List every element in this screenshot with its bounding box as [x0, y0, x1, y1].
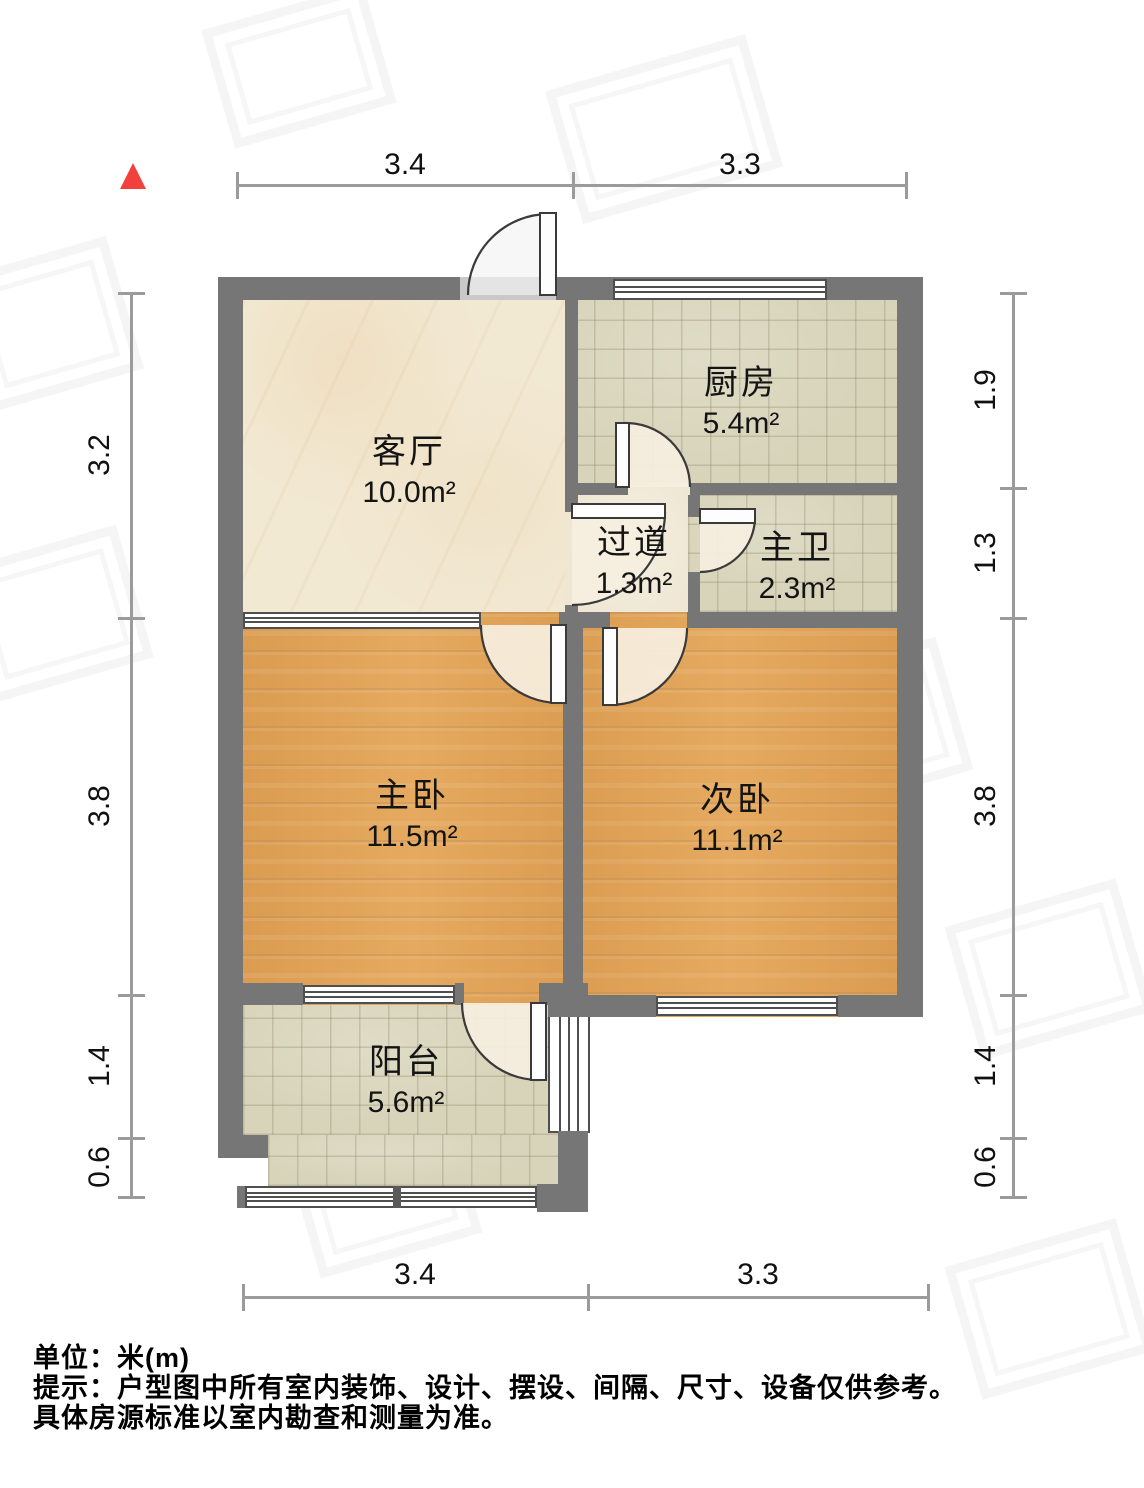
- master-balcony-window: [303, 985, 455, 1004]
- wall-master-bottom-left: [218, 983, 303, 1005]
- dim-tick: [118, 617, 145, 620]
- balcony-side-window: [548, 1005, 590, 1133]
- watermark: [0, 236, 144, 412]
- wall-kitchen-bottom-right: [690, 483, 923, 495]
- wall-left: [218, 277, 243, 1158]
- wall-right: [897, 277, 923, 1017]
- wall-bath-bottom: [687, 612, 923, 628]
- dim-tick: [236, 172, 239, 199]
- balcony-window-mullion: [393, 1186, 401, 1208]
- dim-tick: [1000, 994, 1027, 997]
- dim-label-left-3: 1.4: [83, 1045, 117, 1087]
- wall-mid-between-doors: [559, 612, 610, 628]
- dim-label-bottom-2: 3.3: [737, 1258, 779, 1292]
- dim-line-bottom: [243, 1296, 929, 1299]
- room-label-kitchen: 厨房 5.4m²: [703, 355, 780, 441]
- dim-tick: [927, 1284, 930, 1311]
- room-label-bathroom: 主卫 2.3m²: [759, 520, 836, 606]
- watermark: [201, 0, 396, 149]
- room-label-living: 客厅 10.0m²: [362, 424, 455, 510]
- room-area: 5.4m²: [703, 407, 780, 441]
- room-area: 10.0m²: [362, 476, 455, 510]
- dim-tick: [1000, 487, 1027, 490]
- dim-line-left: [130, 293, 133, 1198]
- wall-hallway-bath-upper: [688, 495, 700, 517]
- living-master-partition-window: [243, 612, 481, 629]
- dim-label-top-1: 3.4: [384, 148, 426, 182]
- room-label-balcony: 阳台 5.6m²: [368, 1034, 445, 1120]
- dim-tick: [572, 172, 575, 199]
- dim-label-right-1: 1.9: [969, 369, 1003, 411]
- dim-label-left-4: 0.6: [83, 1146, 117, 1188]
- dim-label-top-2: 3.3: [719, 148, 761, 182]
- watermark: [944, 1218, 1144, 1400]
- wall-living-kitchen: [565, 300, 578, 512]
- dim-tick: [118, 994, 145, 997]
- dim-tick: [1000, 292, 1027, 295]
- room-label-second-bedroom: 次卧 11.1m²: [691, 772, 782, 858]
- room-area: 1.3m²: [596, 567, 673, 601]
- wall-hallway-bath-lower: [688, 572, 700, 612]
- dim-tick: [118, 1137, 145, 1140]
- wall-balcony-bottom-right-cap: [537, 1184, 584, 1212]
- watermark: [944, 878, 1144, 1060]
- dim-label-right-3: 3.8: [969, 785, 1003, 827]
- dim-label-bottom-1: 3.4: [394, 1258, 436, 1292]
- room-area: 11.5m²: [366, 820, 457, 854]
- floor-plan-canvas: 客厅 10.0m² 厨房 5.4m² 过道 1.3m² 主卫 2.3m² 主卧 …: [0, 0, 1144, 1488]
- dim-label-right-2: 1.3: [969, 532, 1003, 574]
- room-label-master-bedroom: 主卧 11.5m²: [366, 768, 457, 854]
- entry-threshold: [460, 277, 556, 300]
- wall-bedroom-divider: [563, 628, 583, 1005]
- room-name: 客厅: [362, 424, 455, 473]
- second-bedroom-window: [656, 996, 838, 1016]
- dim-tick: [905, 172, 908, 199]
- room-area: 2.3m²: [759, 572, 836, 606]
- wall-kitchen-bottom-left: [565, 483, 628, 495]
- room-area: 11.1m²: [691, 824, 782, 858]
- wall-second-bottom-right: [838, 995, 923, 1017]
- tip-line-1: 提示：户型图中所有室内装饰、设计、摆设、间隔、尺寸、设备仅供参考。: [33, 1373, 957, 1403]
- dim-tick: [1000, 1137, 1027, 1140]
- room-name: 主卫: [759, 520, 836, 569]
- watermark: [545, 34, 783, 224]
- footer-notes: 单位：米(m) 提示：户型图中所有室内装饰、设计、摆设、间隔、尺寸、设备仅供参考…: [33, 1343, 957, 1433]
- dim-tick: [587, 1284, 590, 1311]
- room-name: 过道: [596, 515, 673, 564]
- dim-tick: [118, 1196, 145, 1199]
- dim-tick: [1000, 1196, 1027, 1199]
- wall-second-bottom-left: [548, 995, 656, 1017]
- room-area: 5.6m²: [368, 1086, 445, 1120]
- dim-line-right: [1012, 293, 1015, 1198]
- room-name: 主卧: [366, 768, 457, 817]
- dim-tick: [242, 1284, 245, 1311]
- kitchen-window: [613, 279, 827, 300]
- wall-balcony-step: [218, 1135, 268, 1158]
- balcony-bottom-window: [245, 1186, 537, 1208]
- room-name: 次卧: [691, 772, 782, 821]
- room-label-hallway: 过道 1.3m²: [596, 515, 673, 601]
- room-name: 阳台: [368, 1034, 445, 1083]
- dim-label-left-2: 3.8: [83, 785, 117, 827]
- dim-label-left-1: 3.2: [83, 434, 117, 476]
- dim-label-right-4: 1.4: [969, 1045, 1003, 1087]
- north-indicator-icon: [120, 163, 146, 189]
- room-name: 厨房: [703, 355, 780, 404]
- room-balcony-lower-floor: [268, 1135, 558, 1186]
- dim-tick: [118, 292, 145, 295]
- tip-line-2: 具体房源标准以室内勘查和测量为准。: [33, 1403, 957, 1433]
- wall-master-bottom-mid: [455, 983, 464, 1005]
- unit-note: 单位：米(m): [33, 1343, 957, 1373]
- dim-tick: [1000, 617, 1027, 620]
- wall-balcony-bottom-left-cap: [237, 1186, 245, 1208]
- dim-label-right-5: 0.6: [969, 1146, 1003, 1188]
